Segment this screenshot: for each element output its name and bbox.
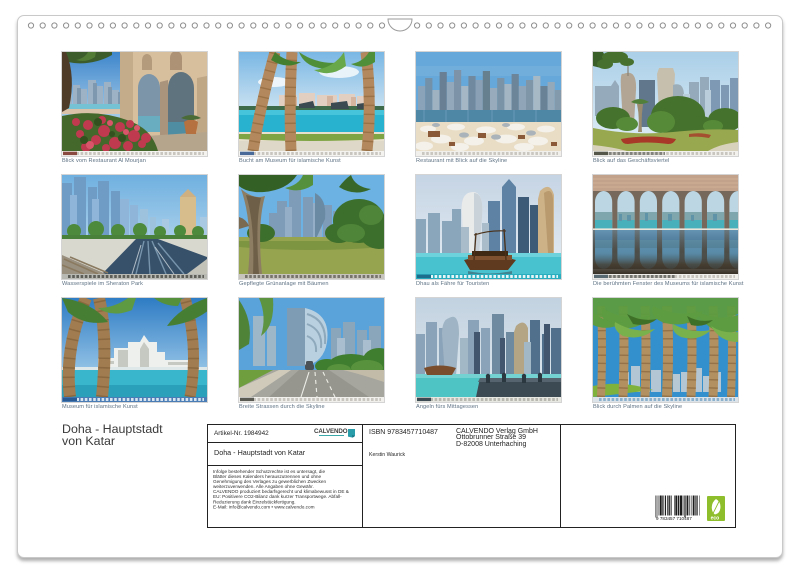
svg-text:9 783457 710487: 9 783457 710487 [656,516,692,521]
svg-text:eco: eco [711,516,720,521]
